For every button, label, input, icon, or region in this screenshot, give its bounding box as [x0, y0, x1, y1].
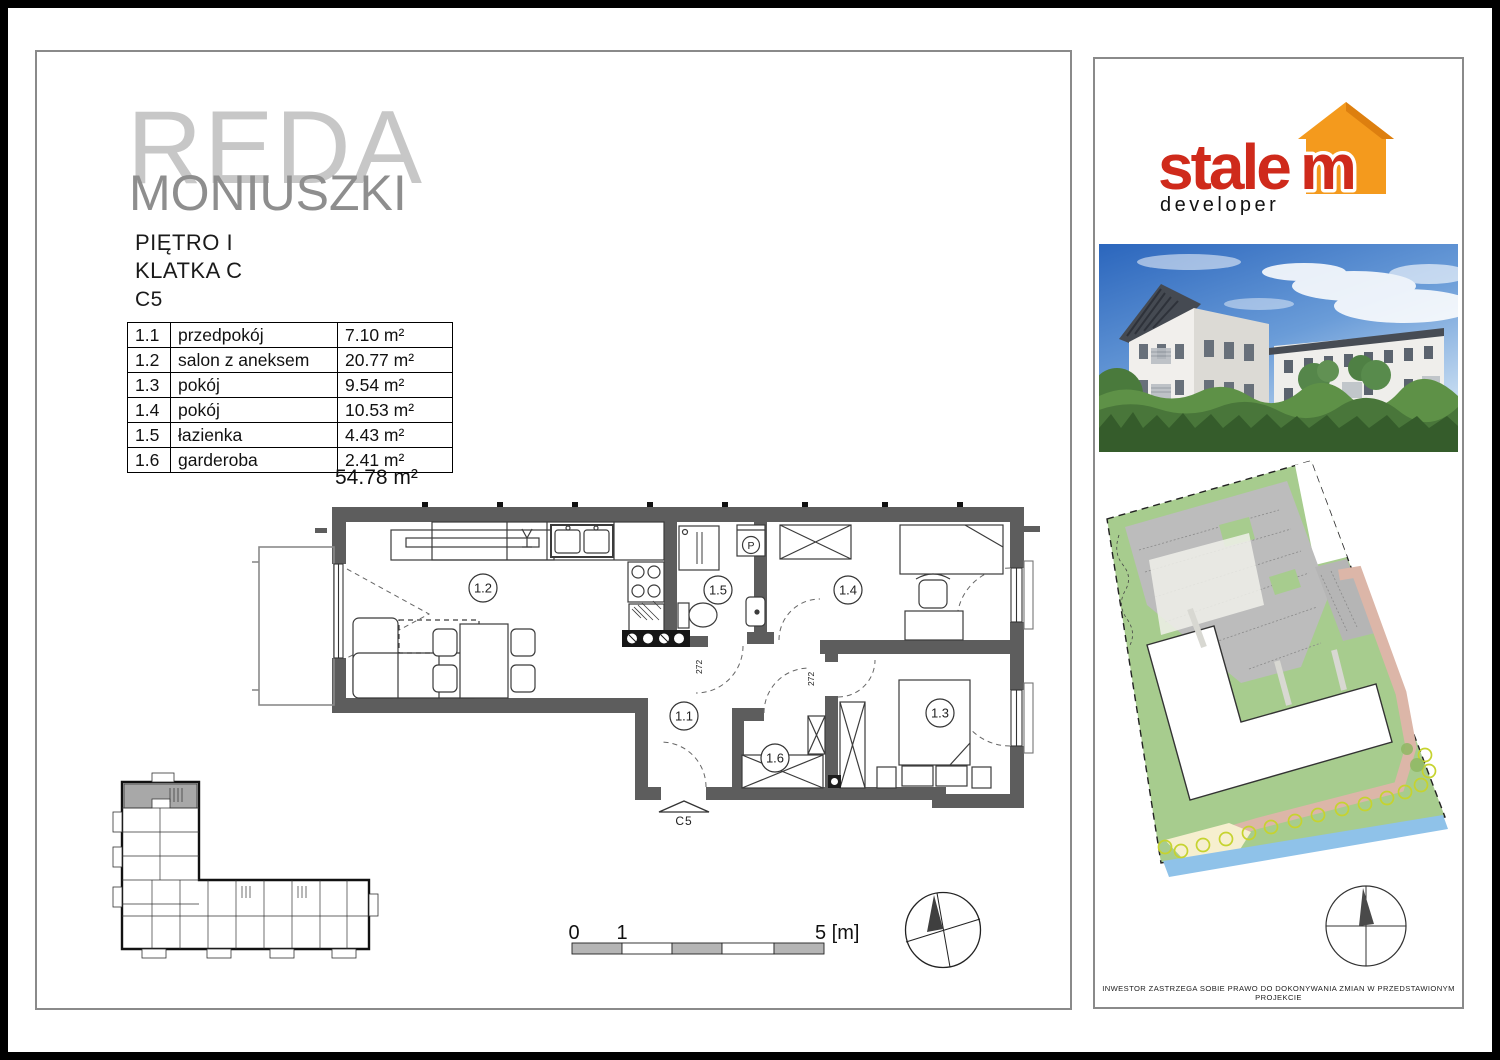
- entrance-label: C5: [675, 814, 692, 828]
- scale-one: 1: [616, 922, 627, 944]
- logo-word-main: stale: [1158, 131, 1290, 203]
- site-compass: [1321, 881, 1411, 971]
- nightstand: [972, 767, 991, 788]
- nightstand: [877, 767, 896, 788]
- scale-five: 5 [m]: [815, 922, 859, 944]
- pillow: [936, 766, 967, 786]
- room-no: 1.5: [128, 423, 171, 448]
- bed-single: [900, 525, 1003, 574]
- dining-table: [460, 624, 508, 698]
- table-row: 1.3 pokój 9.54 m²: [128, 373, 453, 398]
- chair: [433, 665, 457, 692]
- room-badge-11: 1.1: [675, 709, 693, 724]
- building-render-photo: [1099, 244, 1458, 452]
- staircase-label: KLATKA C: [135, 258, 243, 284]
- door-width-annotation: 272: [694, 660, 704, 674]
- logo-word-m: m: [1300, 131, 1357, 203]
- room-badge-16: 1.6: [766, 751, 784, 766]
- developer-logo: stale m developer: [1150, 94, 1420, 224]
- room-area: 7.10 m²: [338, 323, 453, 348]
- page: REDA MONIUSZKI PIĘTRO I KLATKA C C5 1.1 …: [0, 0, 1500, 1060]
- room-badge-12: 1.2: [474, 581, 492, 596]
- balcony: [252, 547, 334, 705]
- room-badge-14: 1.4: [839, 583, 857, 598]
- room-name: pokój: [171, 398, 338, 423]
- disclaimer-text: INWESTOR ZASTRZEGA SOBIE PRAWO DO DOKONY…: [1095, 984, 1462, 1002]
- page-edge-left: [0, 0, 8, 1060]
- room-badge-15: 1.5: [709, 583, 727, 598]
- scale-bar: 0 1 5 [m]: [557, 907, 887, 962]
- chair: [511, 665, 535, 692]
- page-edge-bottom: [0, 1052, 1500, 1060]
- logo-subtitle: developer: [1160, 194, 1279, 216]
- room-name: salon z aneksem: [171, 348, 338, 373]
- unit-label: C5: [135, 288, 163, 312]
- furniture: [353, 522, 1003, 788]
- chair: [511, 629, 535, 656]
- room-no: 1.6: [128, 448, 171, 473]
- rooms-table: 1.1 przedpokój 7.10 m² 1.2 salon z aneks…: [127, 322, 453, 473]
- entrance-marker: C5: [659, 801, 709, 828]
- room-name: przedpokój: [171, 323, 338, 348]
- chair: [433, 629, 457, 656]
- page-edge-right: [1492, 0, 1500, 1060]
- scale-zero: 0: [568, 922, 579, 944]
- building-overview-plan: [107, 770, 417, 970]
- washer-symbol: P: [747, 540, 754, 552]
- room-name: pokój: [171, 373, 338, 398]
- desk: [905, 611, 963, 640]
- main-frame: REDA MONIUSZKI PIĘTRO I KLATKA C C5 1.1 …: [35, 50, 1072, 1010]
- total-area: 54.78 m²: [335, 466, 418, 490]
- tree: [1401, 743, 1413, 755]
- room-name: garderoba: [171, 448, 338, 473]
- room-badges: 1.2 1.5 1.4 1.1 1.6 1.3: [469, 574, 954, 772]
- toilet: [678, 603, 689, 628]
- room-no: 1.2: [128, 348, 171, 373]
- room-name: łazienka: [171, 423, 338, 448]
- room-no: 1.1: [128, 323, 171, 348]
- floor-label: PIĘTRO I: [135, 230, 233, 256]
- tree: [1410, 758, 1424, 772]
- compass-rose: [895, 880, 995, 985]
- table-row: 1.5 łazienka 4.43 m²: [128, 423, 453, 448]
- door-width-annotation: 272: [806, 672, 816, 686]
- page-edge-top: [0, 0, 1500, 8]
- room-area: 20.77 m²: [338, 348, 453, 373]
- door-block-dot: [831, 778, 838, 785]
- scale-segments: [572, 943, 824, 954]
- shower: [679, 526, 719, 570]
- pillow: [902, 766, 933, 786]
- room-area: 10.53 m²: [338, 398, 453, 423]
- kitchen-unit: [629, 604, 664, 632]
- room-no: 1.3: [128, 373, 171, 398]
- table-row: 1.4 pokój 10.53 m²: [128, 398, 453, 423]
- right-panel: stale m developer: [1093, 57, 1464, 1009]
- room-area: 9.54 m²: [338, 373, 453, 398]
- room-area: 4.43 m²: [338, 423, 453, 448]
- table-row: 1.2 salon z aneksem 20.77 m²: [128, 348, 453, 373]
- street-name: MONIUSZKI: [129, 168, 407, 218]
- room-no: 1.4: [128, 398, 171, 423]
- site-plan: [1099, 455, 1458, 900]
- desk-chair: [919, 580, 947, 608]
- table-row: 1.1 przedpokój 7.10 m²: [128, 323, 453, 348]
- room-badge-13: 1.3: [931, 706, 949, 721]
